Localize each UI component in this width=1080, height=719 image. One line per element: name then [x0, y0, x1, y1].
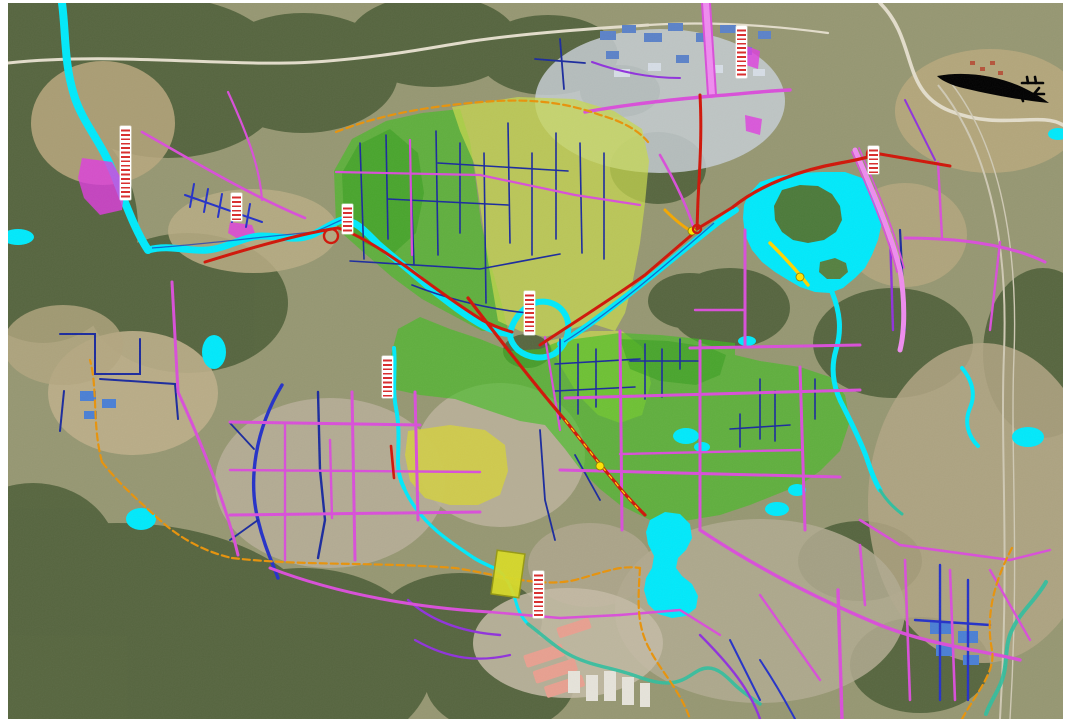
road-name-label: [868, 146, 879, 174]
road-name-label: [524, 291, 535, 335]
highlighted-parcel: [491, 550, 525, 597]
yellow-dot-marker: [596, 462, 604, 470]
north-label-text: 北: [1019, 69, 1045, 99]
road-name-label: [736, 26, 747, 78]
road-name-label: [231, 193, 242, 221]
road-name-label: [382, 356, 393, 398]
road-name-label: [533, 571, 544, 618]
map-page: 北: [0, 0, 1080, 719]
map-canvas: 北: [8, 3, 1063, 719]
road-name-label: [342, 204, 353, 234]
pond: [202, 335, 226, 369]
road-name-label: [120, 126, 131, 200]
yellow-dot-marker: [796, 273, 804, 281]
